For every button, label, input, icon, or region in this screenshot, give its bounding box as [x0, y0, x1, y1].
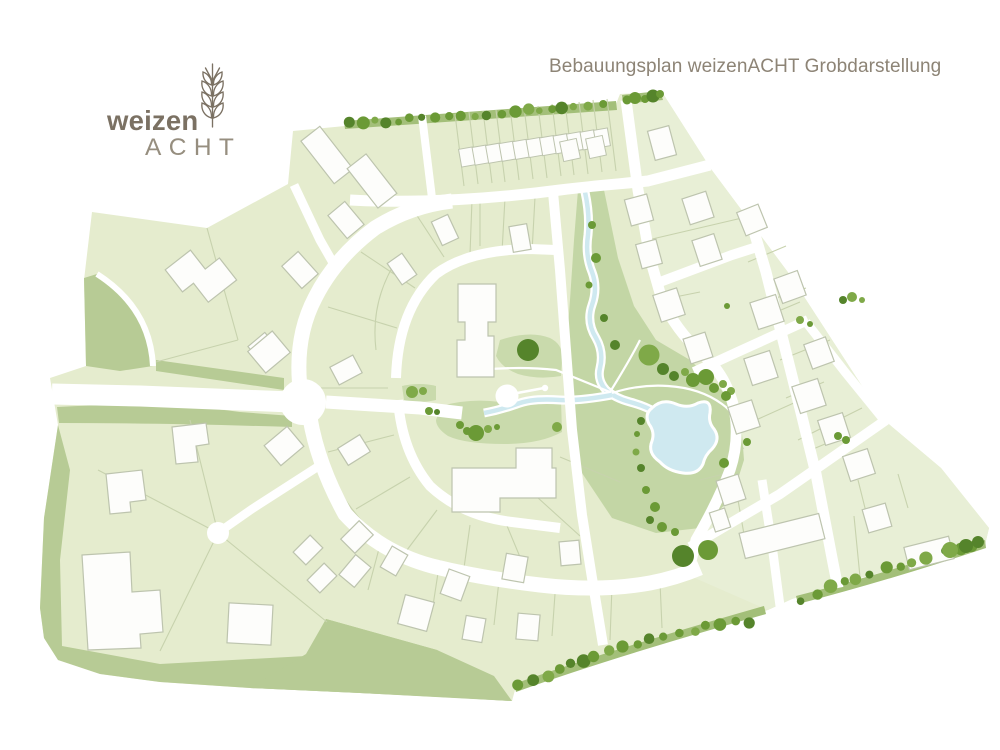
svg-text:weizen: weizen [106, 105, 198, 136]
svg-text:ACHT: ACHT [145, 134, 241, 161]
svg-text:Bebauungsplan weizenACHT Grobd: Bebauungsplan weizenACHT Grobdarstellung [549, 56, 941, 77]
